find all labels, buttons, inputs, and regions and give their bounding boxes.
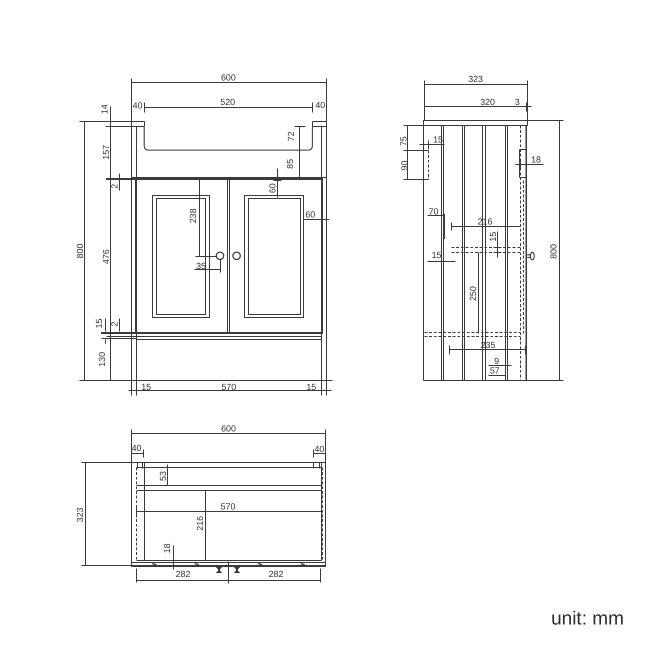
svg-text:130: 130 xyxy=(97,352,107,367)
svg-text:800: 800 xyxy=(75,244,85,259)
svg-text:216: 216 xyxy=(195,516,205,531)
svg-text:238: 238 xyxy=(188,208,198,223)
svg-text:40: 40 xyxy=(133,100,143,110)
svg-text:15: 15 xyxy=(488,232,498,242)
svg-text:15: 15 xyxy=(94,319,104,329)
svg-text:unit: mm: unit: mm xyxy=(551,609,624,630)
svg-text:15: 15 xyxy=(432,250,442,260)
svg-text:72: 72 xyxy=(286,131,296,141)
svg-text:53: 53 xyxy=(158,471,168,481)
svg-text:57: 57 xyxy=(490,365,500,375)
svg-text:35: 35 xyxy=(196,261,206,271)
svg-text:476: 476 xyxy=(101,249,111,264)
svg-text:2: 2 xyxy=(109,321,119,326)
svg-text:15: 15 xyxy=(306,382,316,392)
svg-text:40: 40 xyxy=(315,100,325,110)
svg-text:15: 15 xyxy=(141,382,151,392)
svg-text:323: 323 xyxy=(468,74,483,84)
svg-text:9: 9 xyxy=(494,356,499,366)
svg-text:40: 40 xyxy=(314,444,324,454)
svg-text:570: 570 xyxy=(221,382,236,392)
svg-text:520: 520 xyxy=(220,97,235,107)
svg-text:235: 235 xyxy=(481,340,496,350)
svg-text:600: 600 xyxy=(221,73,236,83)
svg-text:60: 60 xyxy=(305,209,315,219)
svg-text:40: 40 xyxy=(132,443,142,453)
svg-text:18: 18 xyxy=(162,543,172,553)
svg-text:70: 70 xyxy=(429,207,439,217)
svg-text:600: 600 xyxy=(221,424,236,434)
svg-text:282: 282 xyxy=(269,569,284,579)
svg-text:15: 15 xyxy=(433,135,443,145)
svg-text:323: 323 xyxy=(75,507,85,522)
svg-text:18: 18 xyxy=(531,154,541,164)
svg-text:320: 320 xyxy=(480,97,495,107)
svg-text:282: 282 xyxy=(176,569,191,579)
svg-text:85: 85 xyxy=(285,159,295,169)
svg-text:90: 90 xyxy=(399,161,409,171)
svg-text:60: 60 xyxy=(267,183,277,193)
svg-text:2: 2 xyxy=(109,184,119,189)
svg-text:800: 800 xyxy=(549,244,559,259)
svg-text:216: 216 xyxy=(478,217,493,227)
svg-text:570: 570 xyxy=(221,502,236,512)
svg-text:250: 250 xyxy=(468,286,478,301)
svg-text:157: 157 xyxy=(101,145,111,160)
svg-text:3: 3 xyxy=(515,97,520,107)
svg-text:14: 14 xyxy=(100,104,110,114)
svg-text:75: 75 xyxy=(399,136,409,146)
